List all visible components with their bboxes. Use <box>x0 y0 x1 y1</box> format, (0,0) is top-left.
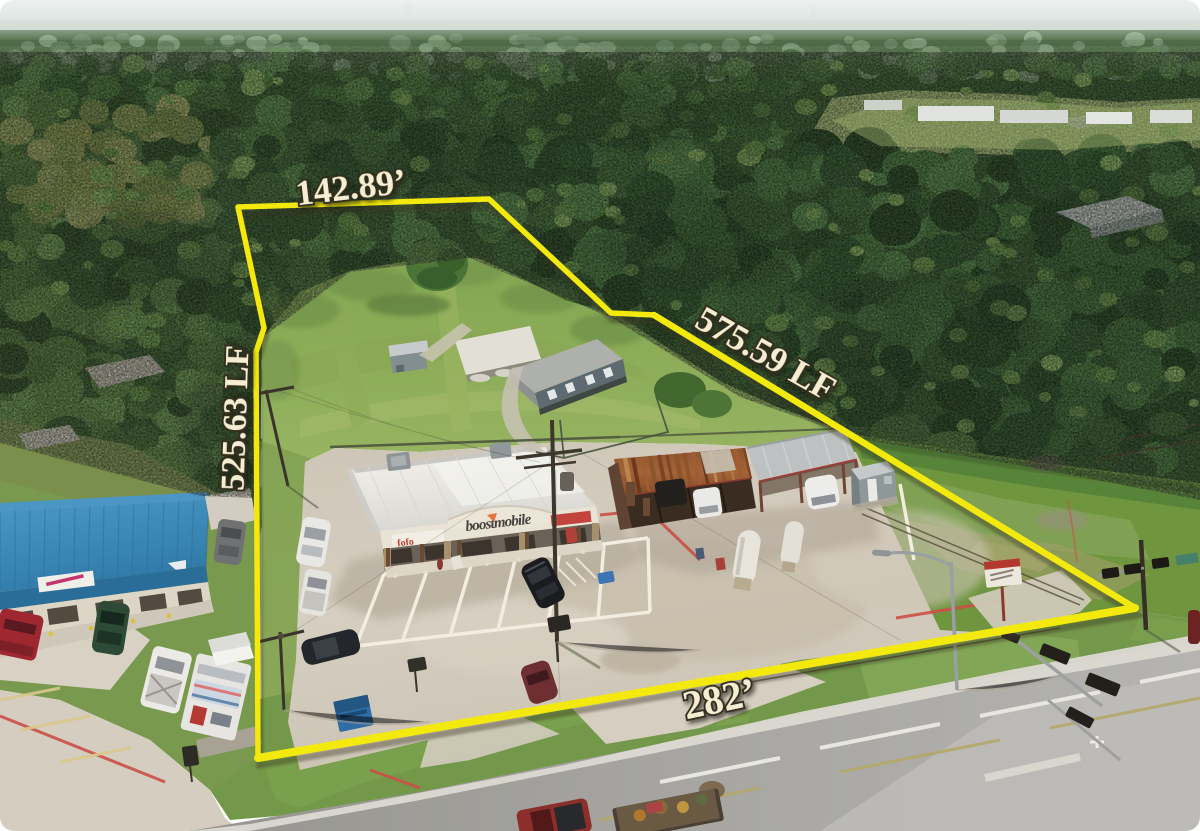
svg-text:525.63 LF: 525.63 LF <box>214 345 256 492</box>
